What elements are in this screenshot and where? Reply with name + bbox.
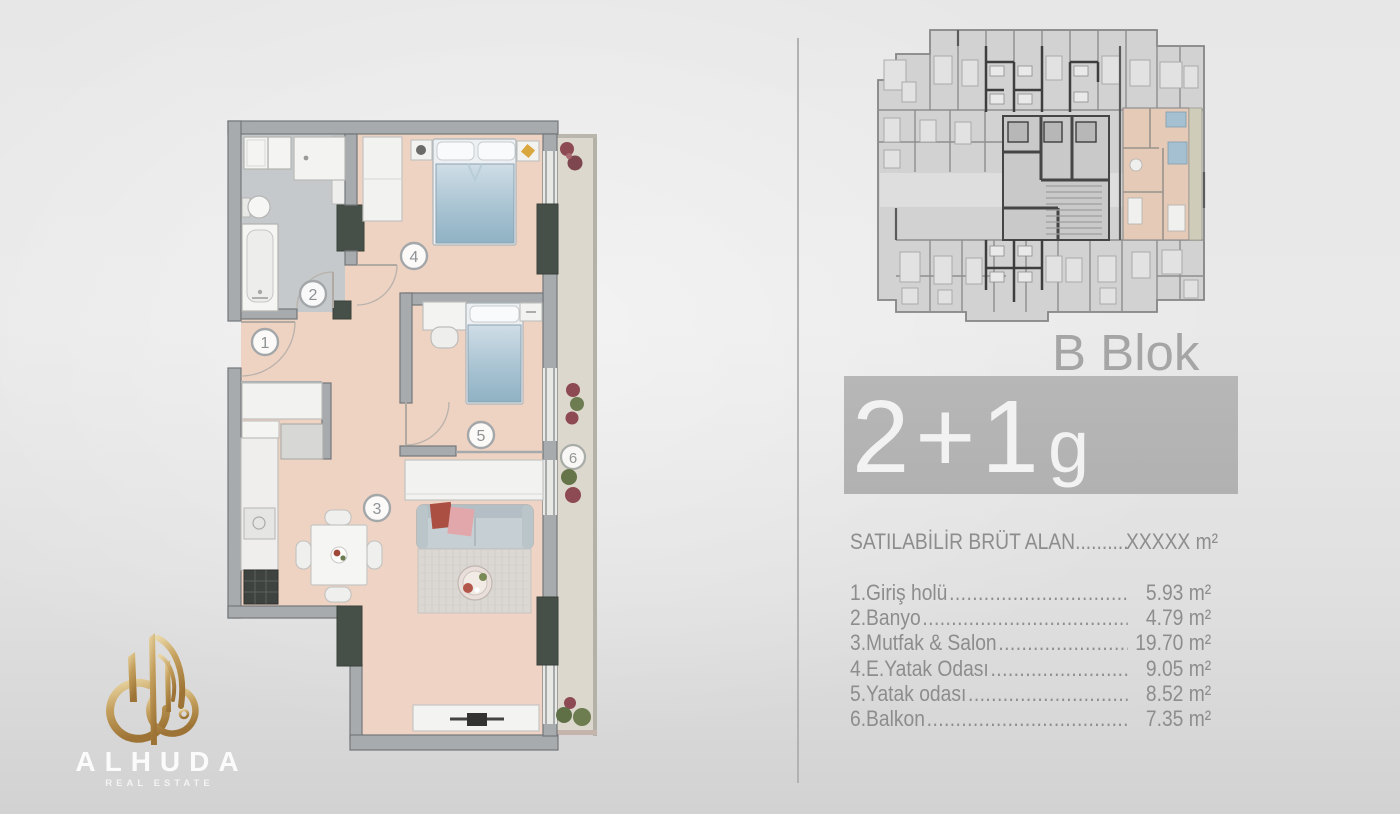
svg-text:1: 1 xyxy=(261,335,270,352)
svg-text:5: 5 xyxy=(477,428,486,445)
svg-text:4: 4 xyxy=(410,249,419,266)
svg-text:3: 3 xyxy=(373,501,382,518)
svg-text:6: 6 xyxy=(569,450,577,467)
svg-text:2: 2 xyxy=(309,287,318,304)
